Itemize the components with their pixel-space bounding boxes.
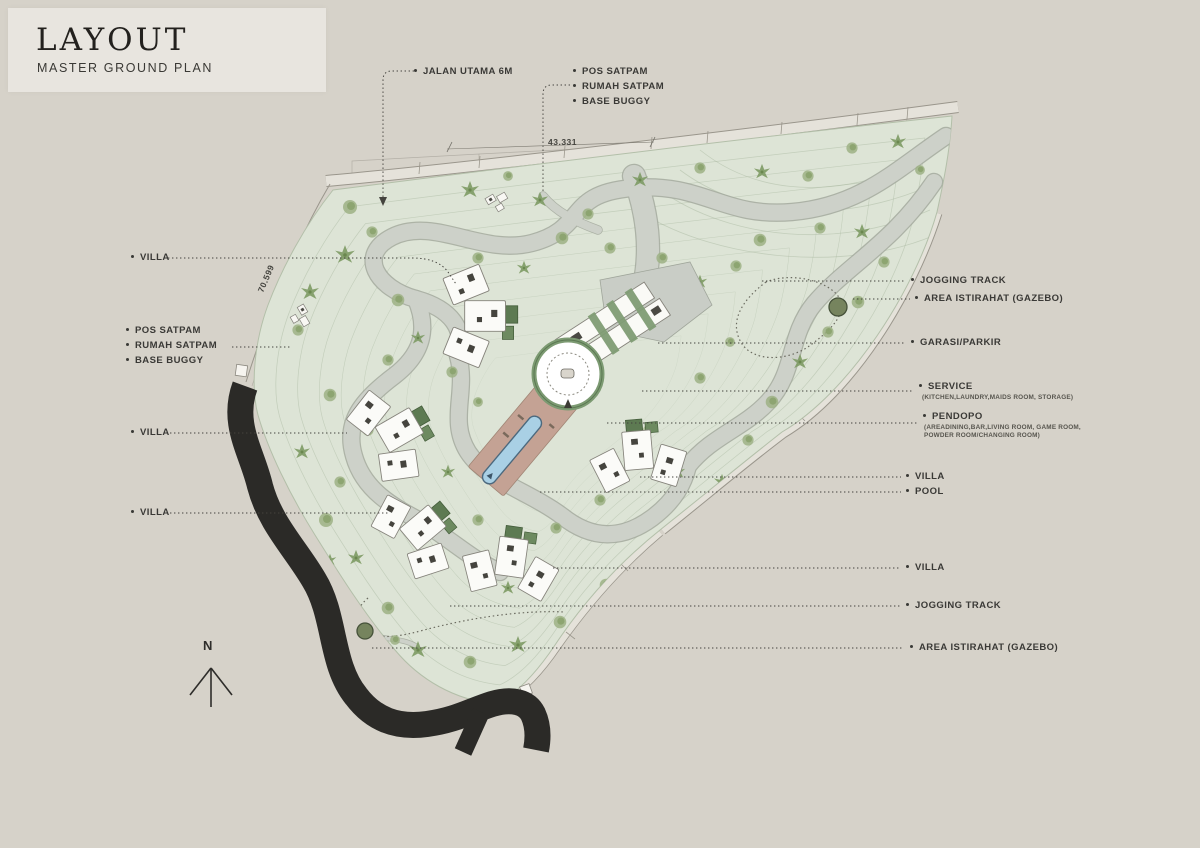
tree — [292, 324, 303, 335]
tree — [392, 294, 405, 307]
label-rumah-satpam-top: RUMAH SATPAM — [573, 81, 664, 92]
tree — [366, 226, 377, 237]
tree — [604, 242, 615, 253]
tree — [550, 522, 561, 533]
label-jogging-track-1: JOGGING TRACK — [911, 275, 1006, 286]
bullet-icon — [131, 255, 134, 258]
tree — [382, 354, 393, 365]
tree — [594, 494, 605, 505]
tree — [915, 165, 925, 175]
dimension-side: 70.599 — [256, 263, 277, 294]
tree — [382, 602, 395, 615]
tree — [694, 162, 705, 173]
label-base-buggy-top: BASE BUGGY — [573, 96, 650, 107]
label-service-detail: (KITCHEN,LAUNDRY,MAIDS ROOM, STORAGE) — [922, 394, 1073, 401]
tree — [878, 256, 889, 267]
tree — [472, 252, 483, 263]
tree — [343, 200, 357, 214]
label-pos-satpam-left: POS SATPAM — [126, 325, 201, 336]
label-base-buggy-left: BASE BUGGY — [126, 355, 203, 366]
bullet-icon — [911, 340, 914, 343]
tree — [730, 260, 741, 271]
bullet-icon — [906, 489, 909, 492]
label-rumah-satpam-left: RUMAH SATPAM — [126, 340, 217, 351]
bullet-icon — [906, 603, 909, 606]
tree — [742, 434, 753, 445]
dimension-top: 43.331 — [548, 137, 577, 147]
label-garasi-parkir: GARASI/PARKIR — [911, 337, 1001, 348]
tree — [503, 171, 513, 181]
master-plan-page: LAYOUT MASTER GROUND PLAN — [0, 0, 1200, 848]
tree — [472, 514, 483, 525]
tree — [814, 222, 825, 233]
tree — [852, 296, 865, 309]
bullet-icon — [906, 474, 909, 477]
bullet-icon — [126, 343, 129, 346]
label-gazebo-2: AREA ISTIRAHAT (GAZEBO) — [910, 642, 1058, 653]
label-pendopo: PENDOPO (AREADINING,BAR,LIVING ROOM, GAM… — [923, 411, 1096, 441]
label-pos-satpam-top: POS SATPAM — [573, 66, 648, 77]
bullet-icon — [910, 645, 913, 648]
bullet-icon — [573, 84, 576, 87]
tree — [802, 170, 813, 181]
bullet-icon — [573, 99, 576, 102]
label-pendopo-detail: (AREADINING,BAR,LIVING ROOM, GAME ROOM, … — [924, 424, 1096, 441]
tree — [390, 635, 400, 645]
label-villa-left-3: VILLA — [131, 507, 170, 518]
bullet-icon — [923, 414, 926, 417]
bullet-icon — [906, 565, 909, 568]
bullet-icon — [573, 69, 576, 72]
tree — [725, 337, 735, 347]
bullet-icon — [919, 384, 922, 387]
label-villa-left-1: VILLA — [131, 252, 170, 263]
label-villa-right-2: VILLA — [906, 562, 945, 573]
bullet-icon — [126, 358, 129, 361]
tree — [754, 234, 767, 247]
bullet-icon — [131, 430, 134, 433]
label-villa-left-2: VILLA — [131, 427, 170, 438]
tree — [656, 252, 667, 263]
label-jogging-track-2: JOGGING TRACK — [906, 600, 1001, 611]
label-jalan-utama: JALAN UTAMA 6M — [414, 66, 513, 77]
tree — [766, 396, 779, 409]
tree — [822, 326, 833, 337]
bullet-icon — [915, 296, 918, 299]
label-gazebo-1: AREA ISTIRAHAT (GAZEBO) — [915, 293, 1063, 304]
tree — [446, 366, 457, 377]
tree — [556, 232, 569, 245]
gazebo-south — [357, 623, 373, 639]
label-villa-right-1: VILLA — [906, 471, 945, 482]
north-arrow-icon — [190, 668, 232, 707]
gazebo-east — [829, 298, 847, 316]
bullet-icon — [131, 510, 134, 513]
label-service: SERVICE (KITCHEN,LAUNDRY,MAIDS ROOM, STO… — [919, 381, 1073, 401]
entry-gate-west — [235, 364, 247, 376]
tree — [694, 372, 705, 383]
tree — [582, 208, 593, 219]
tree — [554, 616, 567, 629]
label-pool: POOL — [906, 486, 944, 497]
tree — [473, 397, 483, 407]
pendopo-building — [534, 340, 602, 408]
north-label: N — [203, 638, 213, 653]
bullet-icon — [911, 278, 914, 281]
tree — [319, 513, 333, 527]
bullet-icon — [414, 69, 417, 72]
tree — [324, 389, 337, 402]
bullet-icon — [126, 328, 129, 331]
tree — [334, 476, 345, 487]
tree — [846, 142, 857, 153]
tree — [464, 656, 477, 669]
